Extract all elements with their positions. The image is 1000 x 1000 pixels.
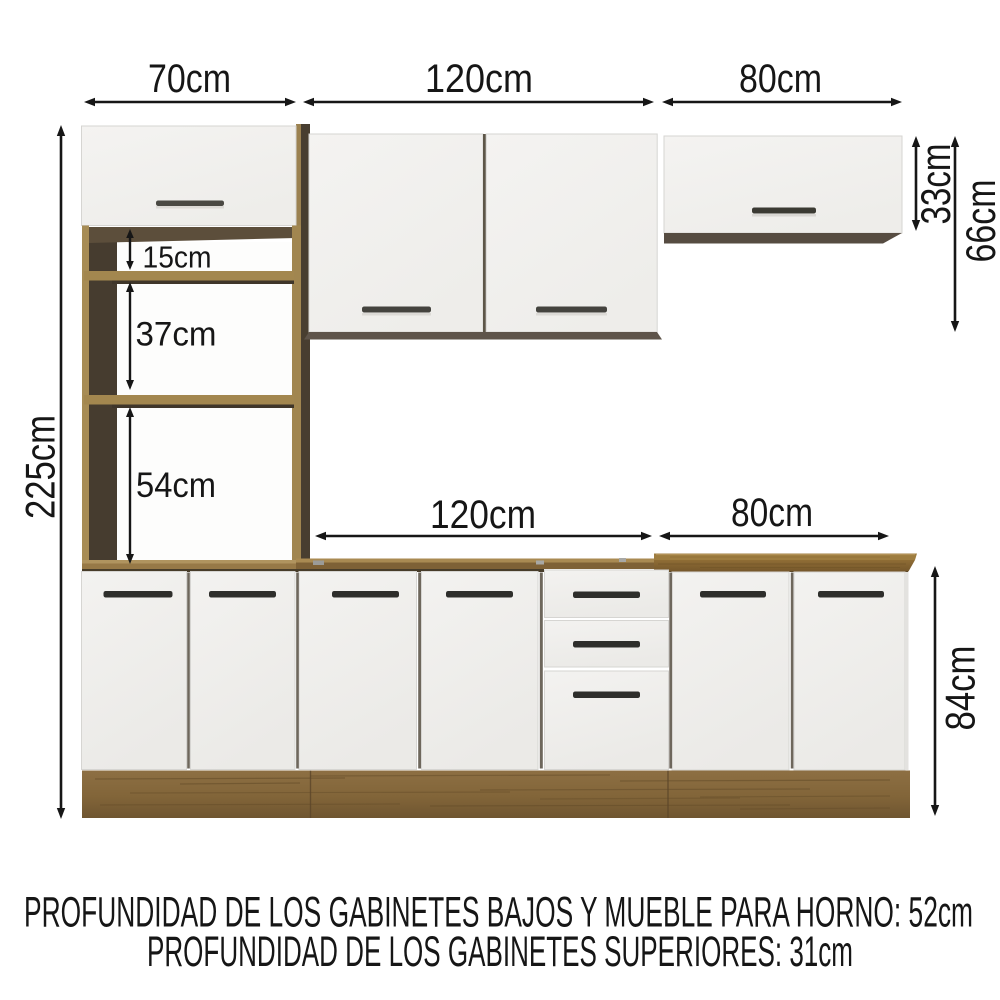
svg-text:15cm: 15cm xyxy=(143,240,212,275)
svg-text:37cm: 37cm xyxy=(136,316,217,354)
svg-text:54cm: 54cm xyxy=(136,466,216,505)
svg-text:PROFUNDIDAD DE LOS GABINETES S: PROFUNDIDAD DE LOS GABINETES SUPERIORES:… xyxy=(147,928,853,976)
svg-text:120cm: 120cm xyxy=(430,493,536,537)
svg-text:70cm: 70cm xyxy=(148,57,231,101)
svg-text:33cm: 33cm xyxy=(912,144,959,225)
svg-text:80cm: 80cm xyxy=(739,57,822,101)
svg-text:80cm: 80cm xyxy=(731,491,813,535)
svg-text:84cm: 84cm xyxy=(937,646,984,731)
svg-text:66cm: 66cm xyxy=(957,180,1000,263)
svg-text:120cm: 120cm xyxy=(425,57,533,101)
svg-text:225cm: 225cm xyxy=(17,415,64,519)
